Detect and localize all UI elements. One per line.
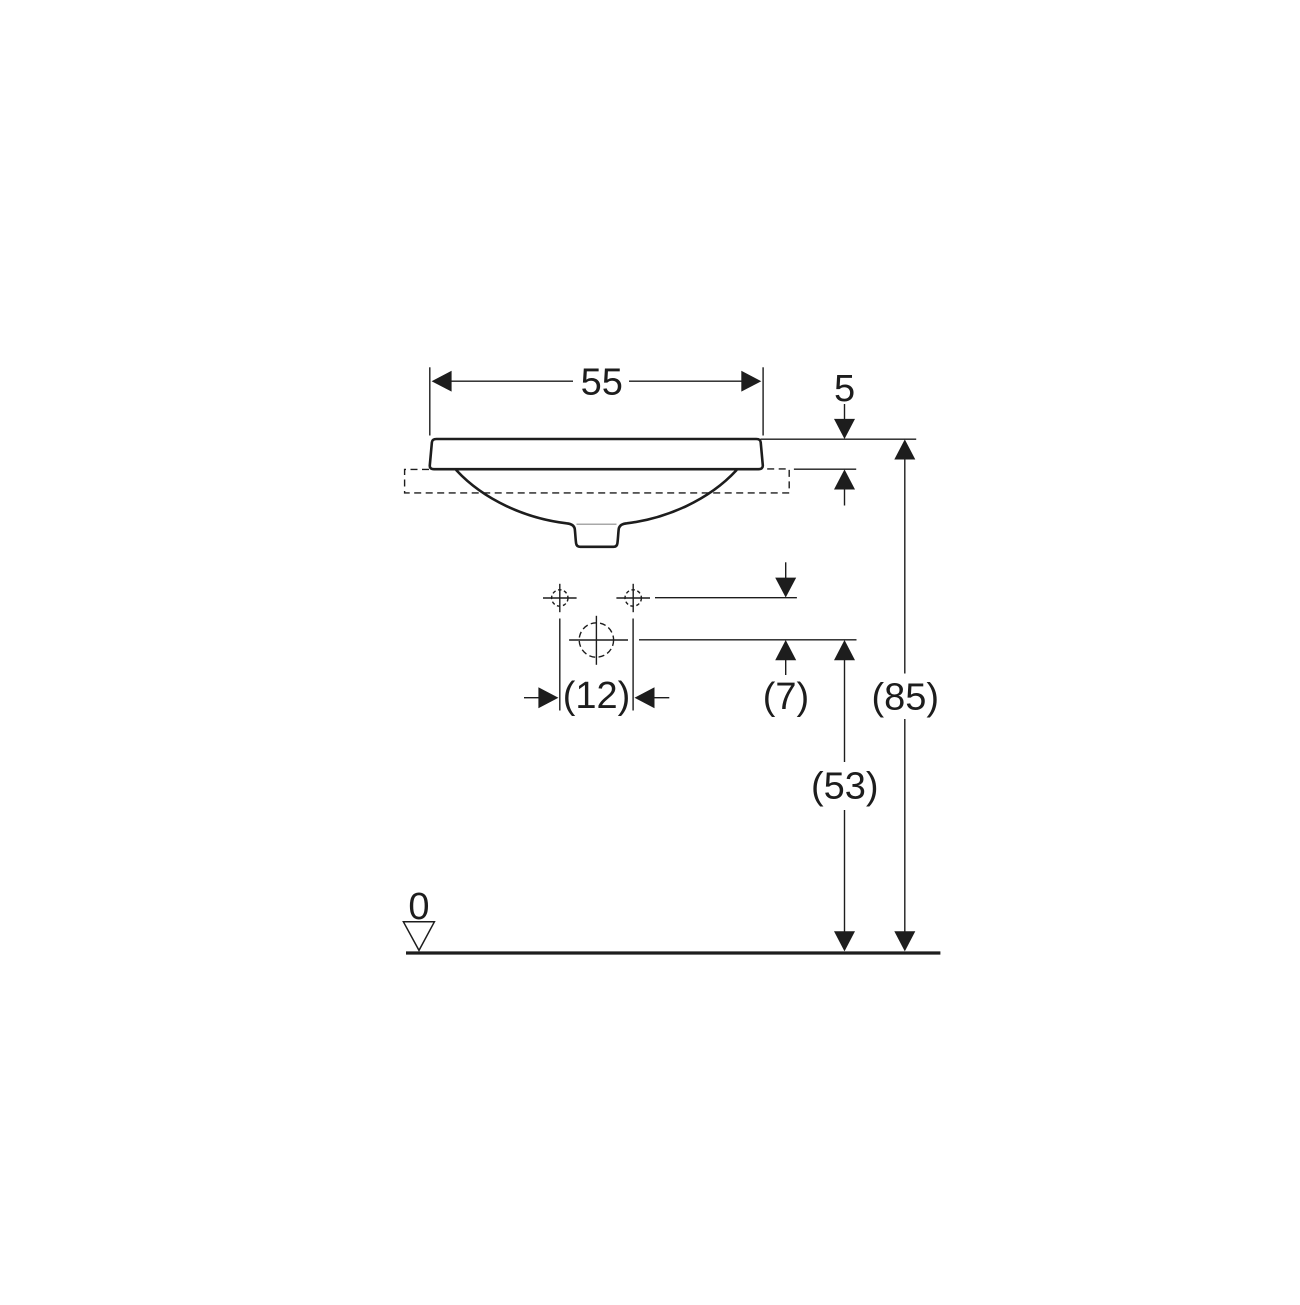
svg-text:(53): (53) (811, 765, 879, 807)
svg-text:(85): (85) (872, 677, 940, 719)
svg-text:(7): (7) (763, 676, 809, 718)
svg-text:55: 55 (581, 362, 623, 404)
svg-text:5: 5 (834, 368, 855, 410)
svg-text:(12): (12) (563, 675, 631, 717)
